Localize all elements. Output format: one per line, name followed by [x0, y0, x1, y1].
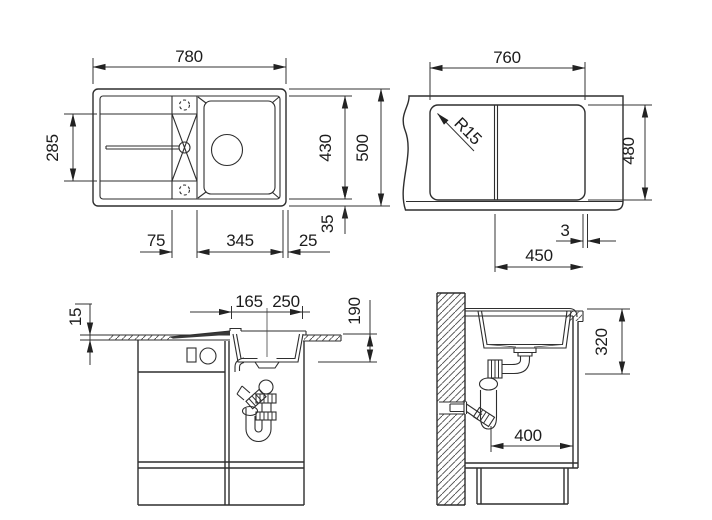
- worktop-linework: [403, 96, 623, 210]
- dim-bowl-span: 450: [495, 214, 583, 272]
- dim-label-15: 15: [66, 308, 85, 326]
- wall-hatch-lower: [437, 414, 465, 505]
- dim-label-285: 285: [43, 134, 62, 161]
- dim-label-450: 450: [525, 246, 552, 265]
- drainboard-edges: [100, 96, 197, 199]
- siphon-riser-nut: [243, 407, 258, 416]
- dim-label-35: 35: [318, 215, 337, 233]
- siphon-outlet-end: [237, 386, 250, 400]
- dim-label-430: 430: [316, 134, 335, 161]
- dim-drainboard-depth: 285: [43, 114, 97, 181]
- dim-label-25: 25: [299, 231, 317, 250]
- sink-installation-drawing-page: 780 285 430 500 35 75 3: [0, 0, 712, 520]
- technical-drawing-canvas: 780 285 430 500 35 75 3: [0, 0, 712, 520]
- dim-bowl-length: 430: [289, 96, 352, 199]
- dim-label-190: 190: [345, 297, 364, 324]
- overflow-elbow: [235, 358, 244, 372]
- cabinet-linework: [138, 340, 304, 505]
- wall-linework: [437, 293, 465, 505]
- dim-rim-offset: 35: [318, 188, 345, 234]
- wall-hatch-upper: [437, 293, 465, 402]
- tap-hole-top-icon: [180, 100, 190, 110]
- cutout-divider: [495, 105, 498, 200]
- dim-label-480: 480: [619, 137, 638, 164]
- dim-label-345: 345: [226, 231, 253, 250]
- dim-bowl-depth: 190: [318, 297, 377, 362]
- dim-label-500: 500: [353, 134, 372, 161]
- dim-cutout-width: 760: [430, 48, 585, 100]
- drainboard-groove: [106, 146, 179, 149]
- front-cabinet: [138, 340, 304, 505]
- front-linework: [80, 308, 341, 372]
- front-siphon-trap: [237, 380, 276, 442]
- dim-label-320: 320: [592, 328, 611, 355]
- counter-section-hatch: [566, 312, 582, 322]
- plan-view: 780 285 430 500 35 75 3: [43, 47, 390, 258]
- dim-label-780: 780: [175, 47, 202, 66]
- drain-fitting-side: [514, 348, 536, 356]
- dim-label-250: 250: [272, 292, 299, 311]
- bowl-inner-edge: [204, 101, 275, 194]
- counter-left-hatch: [108, 335, 170, 340]
- siphon-coupling-2: [256, 412, 276, 420]
- dim-label-400: 400: [514, 426, 541, 445]
- plan-sink-linework: [93, 89, 286, 206]
- dim-overall-depth: 500: [289, 89, 390, 206]
- dim-corner-radius: R15: [438, 114, 486, 152]
- tap-ledge-cross: [172, 114, 197, 181]
- bowl-corner-chamfers: [198, 97, 279, 198]
- siphon-u-bend: [246, 408, 271, 442]
- drain-circle: [212, 135, 243, 166]
- dim-label-165: 165: [235, 292, 262, 311]
- side-counter-sink: [465, 309, 583, 357]
- counter-right-hatch: [304, 335, 340, 341]
- dim-label-r15: R15: [450, 114, 485, 149]
- dim-edge-gap: 3: [556, 214, 616, 248]
- drain-fitting: [255, 362, 279, 368]
- dim-cutout-height: 480: [588, 105, 652, 200]
- cutout-view: R15 760 480 3 450: [403, 48, 652, 272]
- dim-drain-offsets: 165 250: [190, 292, 310, 319]
- dim-label-3: 3: [560, 221, 569, 240]
- front-view: 15 165 250 190: [66, 292, 377, 505]
- dim-label-760: 760: [493, 48, 520, 67]
- cutout-outline: [430, 105, 585, 200]
- dim-wall-distance: 400: [491, 426, 573, 452]
- tap-hole-bottom-icon: [180, 185, 190, 195]
- side-ball-nut: [480, 378, 498, 390]
- side-view: 320 400: [437, 293, 630, 505]
- dim-label-75: 75: [147, 231, 165, 250]
- drain-elbow: [502, 356, 530, 374]
- dim-bottom-segments: 75 345 25: [140, 210, 330, 258]
- worktop-outline: [403, 96, 623, 210]
- dim-overall-width: 780: [93, 47, 286, 84]
- appliance-button-icon: [187, 348, 196, 362]
- dim-install-clearance: 320: [585, 309, 630, 374]
- appliance-knob-icon: [200, 348, 216, 364]
